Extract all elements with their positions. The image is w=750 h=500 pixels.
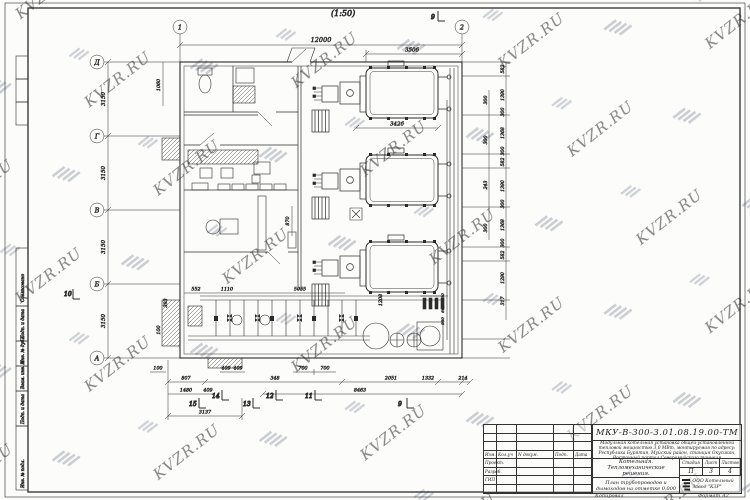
sign-row-label: Разраб. [484, 468, 497, 477]
dim-label: 582 [500, 65, 506, 74]
section-marker-label: 15 [189, 401, 197, 408]
dim-label: 1290 [500, 272, 506, 284]
dim-label: 409 [232, 366, 242, 372]
dim-label: 1332 [422, 376, 434, 382]
water-treatment-room [206, 196, 362, 250]
dim-label: 300 [500, 147, 506, 156]
project-description: Модульная котельная установка общей уста… [593, 441, 741, 459]
dim-label: 5055 [294, 287, 306, 293]
sheet-label: Лист [703, 459, 720, 468]
signature-table: Изм. Кол.уч N докум. Подп. Дата Проект. … [484, 425, 592, 493]
dim-label: 300 [483, 136, 489, 145]
company-logo-icon [682, 478, 690, 492]
axis-label: Б [94, 281, 100, 289]
stamp-strip-label: Подп. и дата [20, 394, 25, 425]
dim-label: 300 [500, 239, 506, 248]
stamp-strip-label: Согласовано [20, 273, 25, 302]
axis-label: Д [93, 59, 100, 67]
boiler-unit-2 [312, 148, 451, 219]
tank [420, 326, 440, 346]
piping-gallery [188, 296, 448, 350]
stage-sheet-table: Стадия Лист Листов П 3 4 [680, 459, 741, 476]
section-marker-label: 9 [431, 14, 435, 21]
axis-label: А [94, 355, 100, 363]
dim-label: 1390 [500, 180, 506, 192]
section-marker-label: 13 [243, 401, 251, 408]
dim-label: 582 [500, 158, 506, 167]
dim-label: 3150 [101, 240, 107, 254]
company-name: ООО Котельный Завод "КЗР" [692, 479, 739, 489]
dimensions-bottom: 100 409 409 700 700 807 348 2051 1332 21… [150, 360, 473, 420]
dim-label: 3506 [405, 48, 419, 54]
axis-label: В [94, 207, 100, 215]
sheets-value: 4 [720, 468, 741, 477]
dim-label: 3150 [101, 314, 107, 328]
sheets-label: Листов [720, 459, 741, 468]
section-marker-label: 12 [266, 393, 274, 400]
dim-label: 582 [500, 251, 506, 260]
dimensions-top: 12000 3506 3426 [177, 36, 465, 131]
document-number: МКУ-В-300-3.01.08.19.00-ТМ [593, 425, 741, 441]
dim-label: 700 [298, 366, 307, 372]
dim-label: 1368 [500, 219, 506, 231]
dim-label: 300 [500, 200, 506, 209]
footer-format-label: Формат А2 [698, 493, 729, 499]
stamp-strip-label: Инв. № подл. [20, 459, 25, 489]
dim-label: 1480 [180, 388, 192, 394]
building-walls [180, 48, 462, 358]
operator-room [188, 150, 286, 190]
left-stamp-strip: Согласовано Подп. и дата Инв. № дубл. Вз… [16, 56, 28, 490]
section-marker-label: 9 [398, 401, 402, 408]
stamp-strip-label: Взам. инв. № [20, 360, 25, 390]
title-block: Изм. Кол.уч N докум. Подп. Дата Проект. … [483, 424, 742, 494]
dim-label: 8463 [354, 388, 366, 394]
dim-label: 1110 [221, 287, 233, 293]
dim-label: 100 [153, 366, 162, 372]
drawing-sheet: KVZR.RU [0, 0, 750, 500]
dim-label: 100 [156, 325, 162, 334]
sheet-frame [5, 3, 745, 497]
dim-label: 300 [483, 224, 489, 233]
sign-row-label: ГИП [484, 476, 497, 485]
dim-label: 3426 [390, 122, 404, 128]
dim-label: 317 [500, 297, 506, 306]
axis-label: 1 [178, 24, 182, 32]
dim-label: 348 [270, 376, 279, 382]
sign-col-header: Изм. [484, 451, 497, 460]
dim-label: 300 [483, 96, 489, 105]
sign-col-header: Дата [574, 451, 592, 460]
grid-axes: 1 2 Д Г В Б А [90, 20, 469, 365]
dim-label: 243 [483, 181, 489, 191]
dim-label: 409 [220, 366, 230, 372]
stage-value: П [680, 468, 703, 477]
stamp-strip-label: Подп. и дата [20, 309, 25, 340]
section-marker-label: 14 [212, 393, 220, 400]
section-marker-label: 11 [305, 393, 313, 400]
dim-label: 552 [191, 287, 200, 293]
dim-label: 1208 [378, 294, 384, 306]
dim-label: 214 [457, 376, 467, 382]
section-markers: 9 10 15 14 13 12 11 9 [64, 11, 445, 408]
dim-label: 300 [500, 108, 506, 117]
dim-label: 530 [440, 293, 445, 301]
boiler-unit-1 [312, 61, 451, 132]
scale-label: (1:50) [331, 9, 355, 18]
axis-label: 2 [459, 24, 464, 32]
dim-label: 700 [320, 366, 329, 372]
dim-label: 1390 [500, 89, 506, 101]
dim-label: 870 [285, 216, 291, 225]
dim-label: 3150 [101, 92, 107, 106]
sanitary-room [198, 68, 255, 103]
dim-label: 393 [163, 298, 169, 307]
dim-label: 1060 [156, 79, 162, 91]
footer-copy-label: Копировал [595, 493, 624, 499]
dim-label: 807 [181, 376, 191, 382]
sign-row-label: Проект. [484, 459, 497, 468]
sheet-value: 3 [703, 468, 720, 477]
dim-label: 2051 [384, 376, 397, 382]
dim-label: 1368 [500, 127, 506, 139]
dim-label: 980 [440, 317, 445, 325]
dim-label: 662 [440, 305, 445, 313]
axis-label: Г [94, 133, 100, 141]
sign-col-header: N докум. [517, 451, 554, 460]
section-marker-label: 10 [64, 291, 72, 298]
object-name: Котельная. Тепломеханические решения. [593, 459, 679, 478]
dim-label: 12000 [311, 36, 332, 44]
sign-col-header: Подп. [554, 451, 574, 460]
dim-label: 3150 [101, 166, 107, 180]
sign-col-header: Кол.уч [497, 451, 517, 460]
sheet-title: План трубопроводов и дымоходов на отметк… [593, 478, 679, 493]
stage-label: Стадия [680, 459, 703, 468]
dim-label: 3137 [199, 410, 212, 416]
dimensions-right: 582 1390 300 1368 300 582 1390 300 1368 … [440, 62, 510, 358]
